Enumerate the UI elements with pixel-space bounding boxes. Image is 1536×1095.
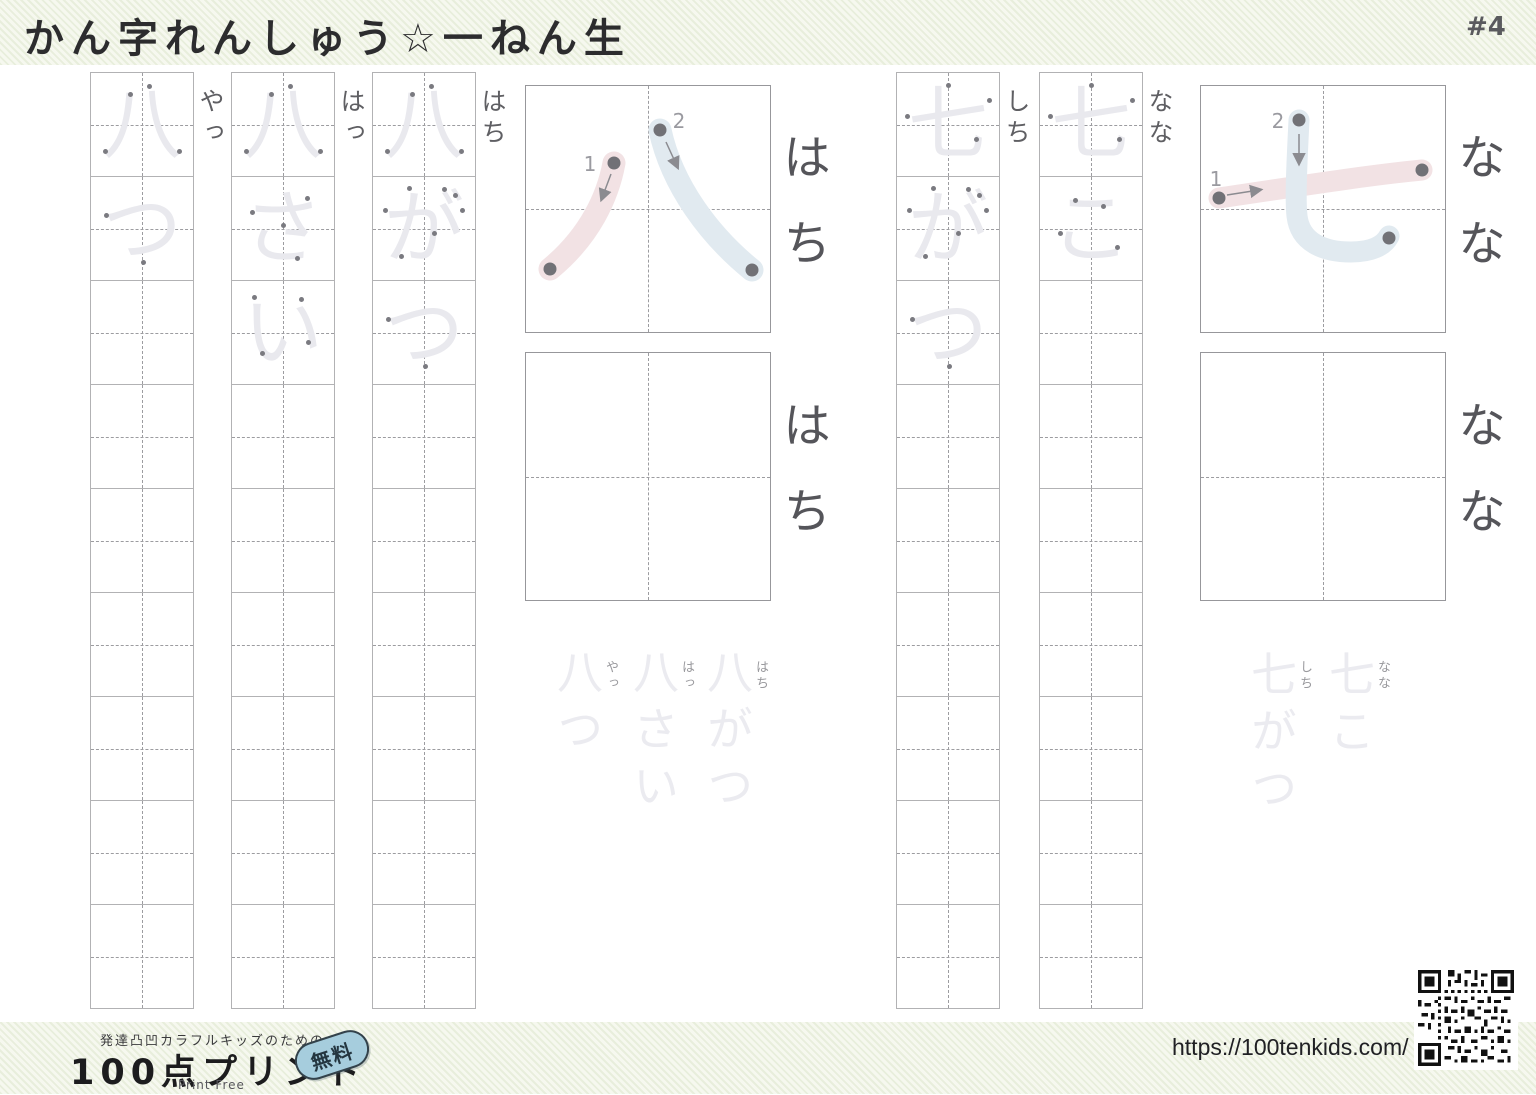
horizontal-guide [232,645,334,646]
practice-cell [231,904,335,1009]
stroke-guide-dot [432,231,437,236]
stroke-guide-dot [128,92,133,97]
horizontal-guide [91,853,193,854]
practice-cell: い [231,280,335,385]
horizontal-guide [232,541,334,542]
stroke-order-box-hachi: 1 2 [525,85,771,333]
practice-cell [896,696,1000,801]
horizontal-guide [232,957,334,958]
practice-cell [372,488,476,593]
practice-cell: つ [896,280,1000,385]
practice-box-empty [1200,352,1446,601]
horizontal-guide [91,957,193,958]
practice-cell [1039,488,1143,593]
horizontal-guide [373,957,475,958]
page-number: #4 [1466,12,1506,42]
practice-cell [372,800,476,905]
stroke-start-dot [608,157,621,170]
horizontal-guide [1040,645,1142,646]
practice-cell [1039,592,1143,697]
practice-box-empty [525,352,771,601]
example-word: 八さい [630,648,676,819]
practice-cell [90,800,194,905]
stroke-guide-dot [1101,204,1106,209]
horizontal-guide [91,541,193,542]
horizontal-guide [91,437,193,438]
stroke-guide-dot [460,208,465,213]
practice-column-hachigatsu: 八がつ [372,73,476,1009]
stroke-guide-dot [1130,98,1135,103]
horizontal-guide [1040,749,1142,750]
column-reading: はっ [339,88,364,150]
trace-character: 八 [91,73,193,176]
stroke-order-box-shichi: 1 2 [1200,85,1446,333]
horizontal-guide [91,645,193,646]
practice-cell [1039,696,1143,801]
practice-cell [231,696,335,801]
horizontal-guide [1201,477,1445,478]
practice-cell: が [372,176,476,281]
stroke-guide-dot [987,98,992,103]
practice-cell [1039,280,1143,385]
stroke-guide-dot [1058,231,1063,236]
horizontal-guide [526,477,770,478]
example-word: 八つ [554,648,600,762]
practice-cell: 七 [1039,72,1143,177]
horizontal-guide [897,853,999,854]
horizontal-guide [232,437,334,438]
stroke-number: 1 [584,152,597,176]
horizontal-guide [232,749,334,750]
practice-cell: が [896,176,1000,281]
horizontal-guide [897,645,999,646]
example-furigana: しち [1298,660,1311,692]
column-reading: しち [1004,88,1029,150]
stroke-guide-dot [410,92,415,97]
stroke-guide-dot [956,231,961,236]
stroke-guide-dot [974,137,979,142]
stroke-end-dot [746,264,759,277]
horizontal-guide [91,749,193,750]
trace-character: さ [232,177,334,280]
horizontal-guide [373,437,475,438]
stroke-guide-dot [1117,137,1122,142]
site-url: https://100tenkids.com/ [1172,1034,1409,1061]
column-reading: はち [480,88,505,150]
practice-cell [896,800,1000,905]
horizontal-guide [1040,437,1142,438]
practice-cell: さ [231,176,335,281]
stroke-guide-dot [269,92,274,97]
stroke-diagram-shichi: 1 2 [1201,86,1447,334]
example-furigana: はっ [680,660,693,692]
horizontal-guide [897,957,999,958]
practice-cell [231,384,335,489]
trace-character: 七 [897,73,999,176]
stroke-guide-dot [1073,198,1078,203]
trace-character: こ [1040,177,1142,280]
practice-cell [372,384,476,489]
stroke-start-dot [1293,114,1306,127]
practice-cell [231,800,335,905]
practice-cell: 七 [896,72,1000,177]
practice-column-shichigatsu: 七がつ [896,73,1000,1009]
practice-cell: 八 [372,72,476,177]
stroke-end-dot [544,263,557,276]
horizontal-guide [1040,333,1142,334]
practice-cell [1039,384,1143,489]
box-reading: はち [778,132,826,304]
column-reading: なな [1147,88,1172,150]
stroke-start-dot [1213,192,1226,205]
practice-cell [896,384,1000,489]
trace-character: 八 [373,73,475,176]
stroke-start-dot [654,124,667,137]
horizontal-guide [897,437,999,438]
practice-cell: 八 [231,72,335,177]
stroke-number: 2 [1272,109,1285,133]
practice-cell [231,488,335,593]
practice-cell: こ [1039,176,1143,281]
horizontal-guide [897,541,999,542]
practice-column-hassai: 八さい [231,73,335,1009]
practice-cell [372,592,476,697]
trace-character: い [232,281,334,384]
stroke-guide-dot [923,254,928,259]
horizontal-guide [91,333,193,334]
horizontal-guide [373,645,475,646]
practice-cell [372,696,476,801]
horizontal-guide [897,749,999,750]
stroke-guide-dot [459,149,464,154]
stroke-1-highlight [1219,170,1422,198]
practice-cell [896,592,1000,697]
practice-cell [90,904,194,1009]
practice-cell [90,696,194,801]
stroke-guide-dot [260,351,265,356]
column-reading: やっ [198,88,223,150]
stroke-number: 1 [1210,167,1223,191]
stroke-2-highlight [660,130,752,270]
horizontal-guide [1040,541,1142,542]
horizontal-guide [1040,957,1142,958]
stroke-guide-dot [318,149,323,154]
stroke-guide-dot [984,208,989,213]
box-reading: なな [1453,400,1501,572]
practice-cell [1039,800,1143,905]
example-word: 七こ [1326,650,1372,764]
example-furigana: やっ [604,660,617,692]
example-word: 八がつ [704,648,750,819]
practice-cell [231,592,335,697]
stroke-guide-dot [177,149,182,154]
print-free-label: Print Free [178,1078,245,1092]
stroke-end-dot [1383,232,1396,245]
practice-column-nanako: 七こ [1039,73,1143,1009]
horizontal-guide [373,541,475,542]
page-title: かん字れんしゅう☆一ねん生 [24,6,631,64]
box-reading: はち [778,400,826,572]
stroke-1-highlight [550,163,614,269]
box-reading: なな [1453,132,1501,304]
practice-cell: つ [372,280,476,385]
stroke-number: 2 [673,109,686,133]
trace-character: 八 [232,73,334,176]
trace-character: が [897,177,999,280]
qr-pattern [1418,970,1514,1066]
practice-cell [90,592,194,697]
practice-cell [372,904,476,1009]
horizontal-guide [373,749,475,750]
practice-cell [1039,904,1143,1009]
horizontal-guide [373,853,475,854]
practice-cell [90,384,194,489]
trace-character: 七 [1040,73,1142,176]
practice-cell [90,488,194,593]
stroke-guide-dot [399,254,404,259]
practice-cell: つ [90,176,194,281]
practice-column-yattsu: 八つ [90,73,194,1009]
stroke-diagram-hachi: 1 2 [526,86,772,334]
example-furigana: なな [1376,660,1389,692]
horizontal-guide [1040,853,1142,854]
practice-cell: 八 [90,72,194,177]
qr-code [1414,966,1518,1070]
stroke-end-dot [1416,164,1429,177]
stroke-guide-dot [407,186,412,191]
example-furigana: はち [754,660,767,692]
example-word: 七がつ [1248,650,1294,821]
practice-cell [90,280,194,385]
horizontal-guide [232,853,334,854]
trace-character: が [373,177,475,280]
practice-cell [896,488,1000,593]
practice-cell [896,904,1000,1009]
stroke-guide-dot [931,186,936,191]
